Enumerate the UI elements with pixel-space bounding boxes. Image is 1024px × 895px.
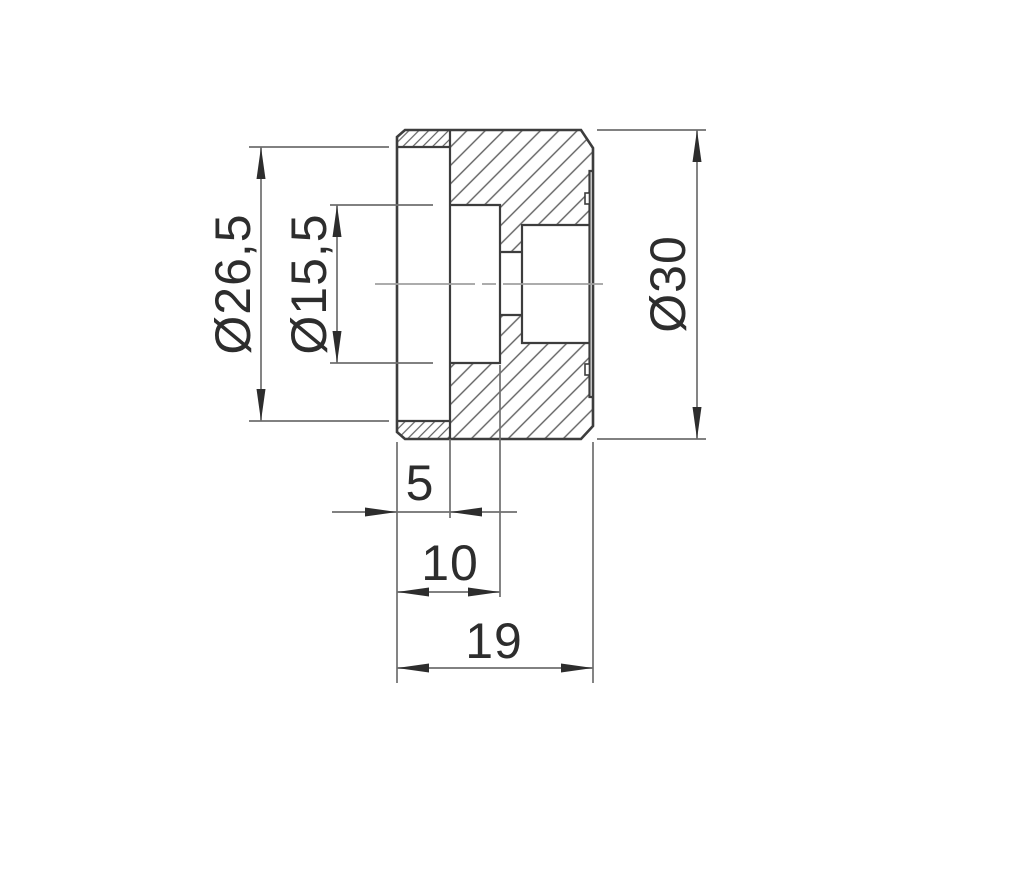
label-hub-diameter: Ø15,5: [281, 213, 337, 354]
label-flange-width: 5: [406, 455, 435, 511]
drawing-canvas: Ø26,5 Ø15,5 Ø30 5 10 19: [0, 0, 1024, 895]
label-hub-length: 10: [421, 535, 479, 591]
groove-notch-bottom: [585, 364, 590, 375]
arrowhead: [257, 389, 266, 421]
arrowhead: [365, 508, 397, 517]
arrowhead: [693, 407, 702, 439]
hatch-region-flange-strip-top: [397, 130, 450, 147]
label-outer-diameter: Ø30: [640, 235, 696, 333]
arrowhead: [450, 508, 482, 517]
groove-notch-top: [585, 193, 590, 204]
technical-drawing-cross-section: Ø26,5 Ø15,5 Ø30 5 10 19: [0, 0, 1024, 895]
label-flange-diameter: Ø26,5: [205, 213, 261, 354]
arrowhead: [693, 130, 702, 162]
arrowhead: [257, 147, 266, 179]
label-overall-length: 19: [465, 613, 523, 669]
hatch-region-flange-strip-bottom: [397, 421, 450, 439]
arrowhead: [561, 664, 593, 673]
arrowhead: [397, 664, 429, 673]
